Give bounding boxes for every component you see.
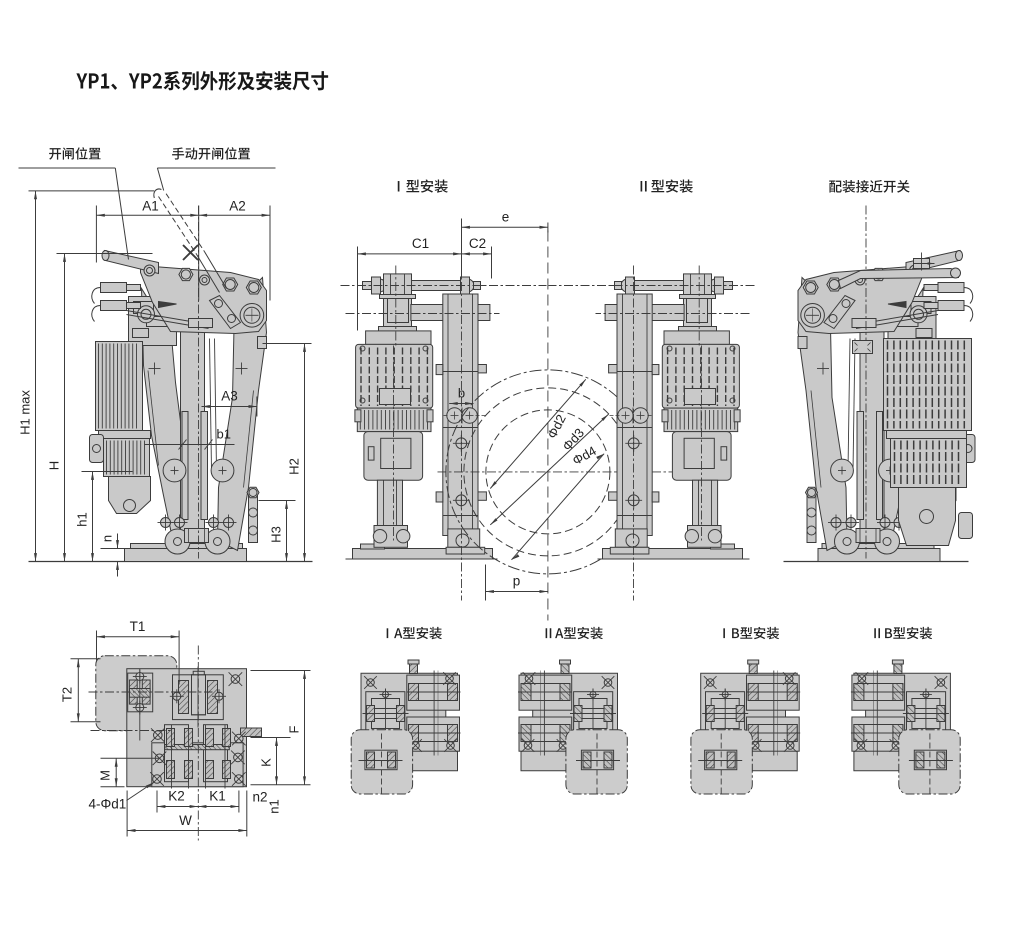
svg-text:4-Φd1: 4-Φd1: [89, 797, 127, 812]
svg-text:H: H: [47, 461, 62, 470]
svg-text:n1: n1: [267, 799, 282, 813]
svg-text:b1: b1: [217, 427, 231, 442]
svg-text:W: W: [179, 813, 192, 828]
svg-text:K: K: [259, 758, 274, 767]
svg-text:p: p: [513, 574, 521, 589]
svg-text:A1: A1: [142, 199, 159, 214]
svg-text:h1: h1: [75, 512, 90, 526]
svg-text:A2: A2: [229, 199, 246, 214]
svg-text:F: F: [287, 725, 302, 733]
svg-text:H1 max: H1 max: [18, 390, 33, 435]
svg-text:T1: T1: [130, 619, 146, 634]
svg-text:e: e: [502, 210, 510, 225]
svg-text:M: M: [98, 770, 113, 781]
svg-text:H3: H3: [269, 526, 284, 543]
svg-text:C2: C2: [469, 236, 486, 251]
svg-text:T2: T2: [60, 687, 75, 702]
svg-text:n: n: [100, 535, 115, 542]
svg-text:b: b: [458, 386, 465, 401]
svg-text:K1: K1: [209, 789, 226, 804]
svg-text:n2: n2: [253, 790, 268, 805]
svg-text:A3: A3: [221, 389, 238, 404]
svg-text:K2: K2: [168, 789, 185, 804]
svg-text:H2: H2: [287, 458, 302, 475]
svg-text:C1: C1: [412, 236, 429, 251]
